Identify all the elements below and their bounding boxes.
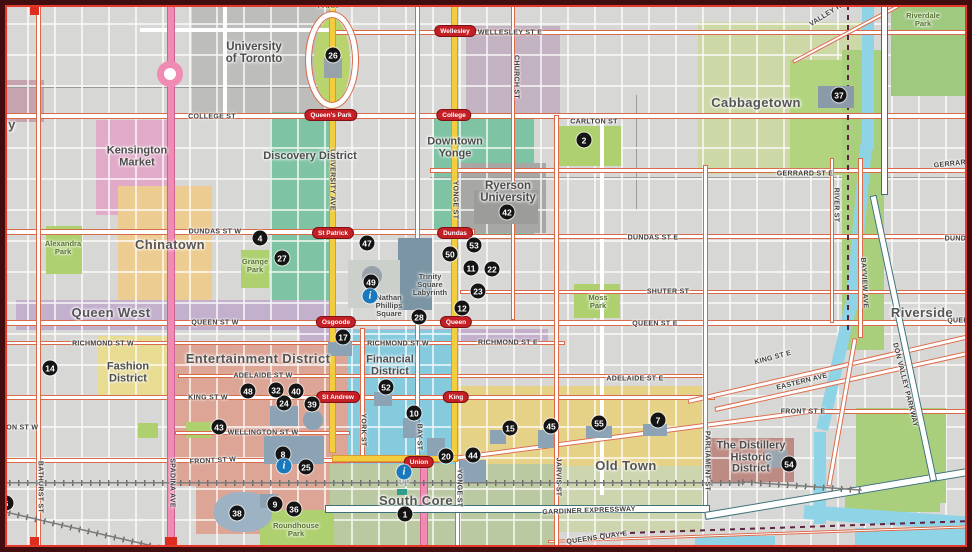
trail-dash-don-river xyxy=(847,0,849,330)
harbour-inlet xyxy=(695,536,775,552)
info-front-st[interactable]: i xyxy=(277,459,292,474)
clarence-square-green xyxy=(138,423,158,438)
street-label-bay-st-31: BAY ST xyxy=(416,424,423,451)
building-39 xyxy=(303,410,323,430)
poi-marker-42[interactable]: 42 xyxy=(500,205,515,220)
poi-marker-10[interactable]: 10 xyxy=(407,406,422,421)
road-college-st xyxy=(0,113,972,119)
poi-marker-40[interactable]: 40 xyxy=(289,384,304,399)
street-label-queen-st-e-10: QUEEN ST E xyxy=(632,321,677,328)
poi-marker-49[interactable]: 49 xyxy=(364,275,379,290)
poi-marker-38[interactable]: 38 xyxy=(230,506,245,521)
district-label-park: PARK xyxy=(318,2,339,10)
road-church-st xyxy=(511,0,515,320)
road-river-st xyxy=(830,158,834,323)
street-label-richmond-st-e-14: RICHMOND ST E xyxy=(478,340,538,347)
street-label-adelaide-st-w-15: ADELAIDE ST W xyxy=(233,373,292,380)
district-label-queen-west: Queen West xyxy=(72,306,151,320)
poi-marker-43[interactable]: 43 xyxy=(212,420,227,435)
street-label-gerrard-st-e-3: GERRARD ST E xyxy=(777,171,834,178)
district-label-cabbagetown: Cabbagetown xyxy=(711,96,801,110)
poi-marker-22[interactable]: 22 xyxy=(485,262,500,277)
poi-marker-28[interactable]: 28 xyxy=(412,310,427,325)
poi-marker-7[interactable]: 7 xyxy=(651,413,666,428)
poi-marker-26[interactable]: 26 xyxy=(326,48,341,63)
edge-tick-bathurst-top xyxy=(30,0,39,15)
street-label-dundas-st-e-6: DUNDAS ST E xyxy=(628,235,679,242)
street-label-dundas-st-w-5: DUNDAS ST W xyxy=(189,229,242,236)
district-label-downtown-yonge: Downtown Yonge xyxy=(427,136,483,159)
street-label-front-st-e-23: FRONT ST E xyxy=(781,409,826,416)
street-label-parliament-st-36: PARLIAMENT ST xyxy=(704,431,711,491)
poi-marker-39[interactable]: 39 xyxy=(305,397,320,412)
district-label-the-distillery-historic-district: The Distillery Historic District xyxy=(716,441,785,476)
poi-marker-50[interactable]: 50 xyxy=(443,247,458,262)
info-nathan-phillips[interactable]: i xyxy=(363,289,378,304)
district-label-moss-park: Moss Park xyxy=(588,294,607,310)
district-label-university-of-toronto: University of Toronto xyxy=(226,41,283,65)
road-bay-st xyxy=(415,0,420,464)
poi-marker-27[interactable]: 27 xyxy=(275,251,290,266)
poi-marker-36[interactable]: 36 xyxy=(287,502,302,517)
district-label-old-town: Old Town xyxy=(595,459,656,473)
toronto-downtown-map: COLLEGE STCARLTON STWELLESLEY ST EGERRAR… xyxy=(0,0,972,552)
edge-tick-spadina-bottom xyxy=(165,537,177,552)
road-don-valley-parkway-n xyxy=(881,0,888,195)
district-label-entertainment-district: Entertainment District xyxy=(186,352,331,366)
road-queen-st xyxy=(0,320,972,326)
poi-marker-52[interactable]: 52 xyxy=(379,380,394,395)
building-44 xyxy=(460,460,486,482)
district-label-up: UP xyxy=(399,479,409,486)
street-label-church-st-34: CHURCH ST xyxy=(513,55,520,99)
street-label-wellesley-st-e-2: WELLESLEY ST E xyxy=(478,30,542,37)
info-union[interactable]: i xyxy=(397,465,412,480)
spadina-roundabout xyxy=(157,61,183,87)
street-label-queen-st-w-9: QUEEN ST W xyxy=(191,320,238,327)
poi-marker-11[interactable]: 11 xyxy=(464,261,479,276)
street-label-spadina-ave-28: SPADINA AVE xyxy=(169,458,176,508)
district-label-ryerson-university: Ryerson University xyxy=(480,180,536,204)
poi-marker-15[interactable]: 15 xyxy=(503,421,518,436)
street-label-carlton-st-1: CARLTON ST xyxy=(570,119,617,126)
poi-marker-25[interactable]: 25 xyxy=(299,460,314,475)
street-label-bathurst-st-27: BATHURST ST xyxy=(37,461,44,513)
district-label-south-core: South Core xyxy=(379,494,453,508)
district-label-roundhouse-park: Roundhouse Park xyxy=(273,522,319,538)
station-badge-st-andrew[interactable]: St Andrew xyxy=(316,391,360,403)
station-badge-queen[interactable]: Queen xyxy=(440,316,472,328)
poi-marker-47[interactable]: 47 xyxy=(360,236,375,251)
district-label-riverside: Riverside xyxy=(891,306,953,320)
district-label-alexandra-park: Alexandra Park xyxy=(45,240,81,256)
station-badge-college[interactable]: College xyxy=(436,109,471,121)
street-label-shuter-st-8: SHUTER ST xyxy=(647,289,689,296)
district-label-nathan-phillips-square: Nathan Phillips Square xyxy=(376,294,403,318)
station-badge-dundas[interactable]: Dundas xyxy=(437,227,473,239)
edge-tick-bathurst-bottom xyxy=(30,537,39,552)
street-label-yonge-st-33: YONGE ST xyxy=(456,469,463,508)
poi-marker-48[interactable]: 48 xyxy=(241,384,256,399)
district-label-fashion-district: Fashion District xyxy=(107,361,149,384)
station-badge-st-patrick[interactable]: St Patrick xyxy=(312,227,354,239)
district-label-financial-district: Financial District xyxy=(366,354,414,377)
street-label-richmond-st-w-13: RICHMOND ST W xyxy=(367,341,429,348)
street-label-adelaide-st-e-16: ADELAIDE ST E xyxy=(606,376,663,383)
poi-marker-4[interactable]: 4 xyxy=(253,231,268,246)
poi-marker-55[interactable]: 55 xyxy=(592,416,607,431)
street-label-york-st-30: YORK ST xyxy=(360,413,367,446)
district-label-kensington-market: Kensington Market xyxy=(107,145,168,168)
street-label-dundas-st-e-7: DUNDAS ST E xyxy=(945,236,972,243)
road-bayview-ave xyxy=(858,158,863,338)
convention-centre-building xyxy=(264,436,324,464)
poi-marker-12[interactable]: 12 xyxy=(455,301,470,316)
victoria-square-green xyxy=(186,422,212,438)
street-label-jarvis-st-35: JARVIS ST xyxy=(555,458,562,497)
station-badge-wellesley[interactable]: Wellesley xyxy=(434,25,476,37)
poi-marker-23[interactable]: 23 xyxy=(471,284,486,299)
poi-marker-14[interactable]: 14 xyxy=(43,361,58,376)
poi-marker-17[interactable]: 17 xyxy=(336,330,351,345)
map-canvas[interactable]: COLLEGE STCARLTON STWELLESLEY ST EGERRAR… xyxy=(0,0,972,552)
district-label-trinity-square-labyrinth: Trinity Square Labyrinth xyxy=(413,273,447,297)
station-badge-king[interactable]: King xyxy=(443,391,469,403)
poi-marker-54[interactable]: 54 xyxy=(782,457,797,472)
district-label-chinatown: Chinatown xyxy=(135,238,205,252)
poi-marker-44[interactable]: 44 xyxy=(466,448,481,463)
district-label-riverdale-park: Riverdale Park xyxy=(906,12,940,28)
road-dundas-st-e xyxy=(455,234,972,239)
poi-marker-9[interactable]: 9 xyxy=(268,497,283,512)
street-label-river-st-37: RIVER ST xyxy=(833,188,840,223)
rail-corridor xyxy=(0,480,745,486)
street-label-college-st-0: COLLEGE ST xyxy=(188,114,236,121)
station-badge-queen-s-park[interactable]: Queen's Park xyxy=(304,109,357,121)
poi-marker-45[interactable]: 45 xyxy=(544,419,559,434)
poi-marker-24[interactable]: 24 xyxy=(277,396,292,411)
road-wellesley-st-e xyxy=(330,30,972,35)
street-label-king-st-w-17: KING ST W xyxy=(188,395,228,402)
poi-marker-1[interactable]: 1 xyxy=(398,507,413,522)
district-label-ly: ly xyxy=(4,118,16,132)
station-badge-osgoode[interactable]: Osgoode xyxy=(316,316,356,328)
allan-gardens xyxy=(557,126,621,166)
district-label-grange-park: Grange Park xyxy=(242,258,268,274)
street-label-wellington-st-w-20: WELLINGTON ST W xyxy=(228,430,299,437)
poi-marker-37[interactable]: 37 xyxy=(832,88,847,103)
street-label-ton-st-w-21: TON ST W xyxy=(2,425,39,432)
poi-marker-32[interactable]: 32 xyxy=(269,383,284,398)
district-label-discovery-district: Discovery District xyxy=(263,151,357,163)
poi-marker-2[interactable]: 2 xyxy=(577,133,592,148)
poi-marker-53[interactable]: 53 xyxy=(467,238,482,253)
road-front-st-e xyxy=(808,409,972,414)
street-label-yonge-st-32: YONGE ST xyxy=(452,181,459,220)
street-label-richmond-st-w-12: RICHMOND ST W xyxy=(72,341,134,348)
poi-marker-20[interactable]: 20 xyxy=(439,449,454,464)
